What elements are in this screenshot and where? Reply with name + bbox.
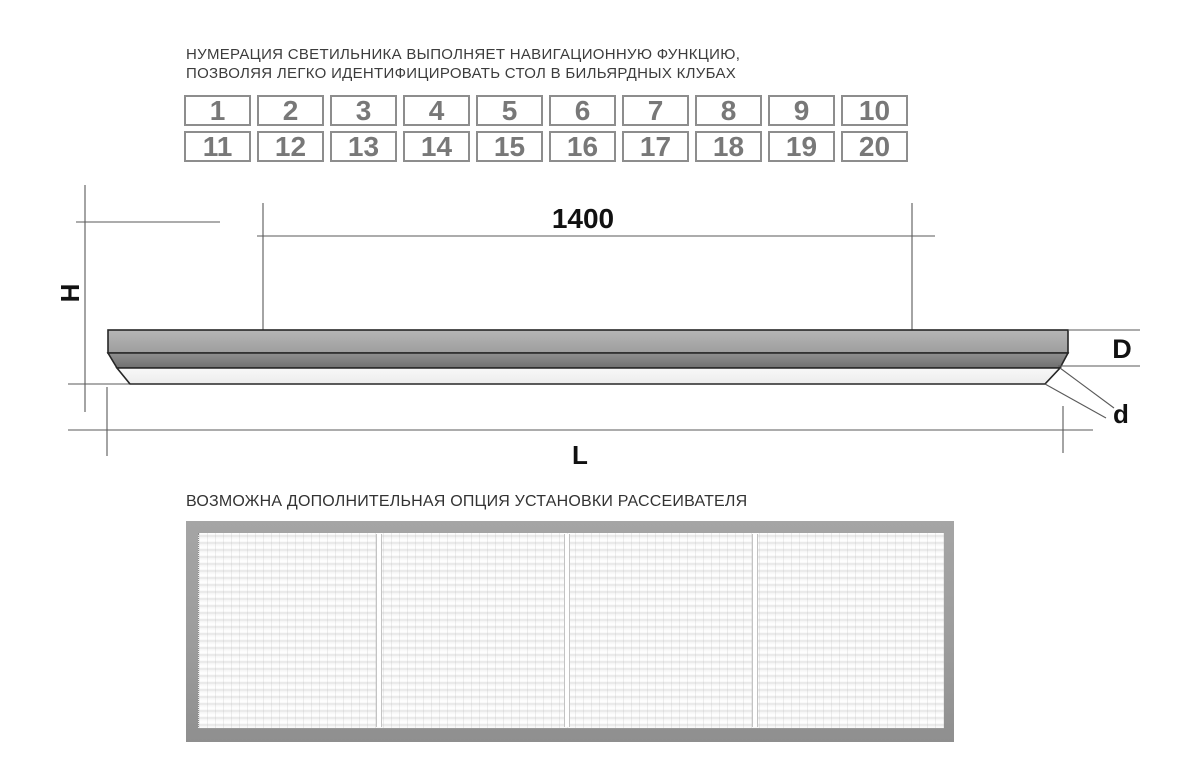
dim-d-small-leader-2 — [1045, 384, 1106, 418]
lamp-housing-band — [108, 353, 1068, 368]
lamp-number-box: 13 — [330, 131, 397, 162]
dim-l-label: L — [572, 440, 588, 470]
headline: НУМЕРАЦИЯ СВЕТИЛЬНИКА ВЫПОЛНЯЕТ НАВИГАЦИ… — [186, 45, 740, 83]
lamp-number-box: 2 — [257, 95, 324, 126]
lamp-number-box: 19 — [768, 131, 835, 162]
lamp-number-box: 16 — [549, 131, 616, 162]
diffuser-panel — [198, 533, 944, 729]
diffuser-photo-frame — [186, 521, 954, 742]
diffuser-caption: ВОЗМОЖНА ДОПОЛНИТЕЛЬНАЯ ОПЦИЯ УСТАНОВКИ … — [186, 493, 747, 511]
number-row: 12345678910 — [184, 95, 908, 126]
lamp-number-box: 6 — [549, 95, 616, 126]
page: НУМЕРАЦИЯ СВЕТИЛЬНИКА ВЫПОЛНЯЕТ НАВИГАЦИ… — [0, 0, 1200, 760]
panel-divider — [376, 534, 382, 727]
lamp-number-box: 8 — [695, 95, 762, 126]
panel-divider — [564, 534, 570, 727]
lamp-dimension-drawing: 1400 H D d L — [0, 180, 1200, 480]
dim-d-small-label: d — [1113, 399, 1129, 429]
lamp-number-box: 10 — [841, 95, 908, 126]
lamp-number-box: 11 — [184, 131, 251, 162]
headline-line2: ПОЗВОЛЯЯ ЛЕГКО ИДЕНТИФИЦИРОВАТЬ СТОЛ В Б… — [186, 64, 740, 83]
lamp-number-box: 15 — [476, 131, 543, 162]
lamp-number-box: 12 — [257, 131, 324, 162]
lamp-number-box: 14 — [403, 131, 470, 162]
lamp-number-box: 20 — [841, 131, 908, 162]
lamp-number-box: 3 — [330, 95, 397, 126]
lamp-number-box: 9 — [768, 95, 835, 126]
lamp-housing-top — [108, 330, 1068, 353]
lamp-number-box: 5 — [476, 95, 543, 126]
lamp-number-box: 4 — [403, 95, 470, 126]
number-row: 11121314151617181920 — [184, 131, 908, 162]
lamp-number-box: 7 — [622, 95, 689, 126]
dim-d-label: D — [1112, 334, 1132, 364]
dim-d-small-leader-1 — [1060, 368, 1114, 408]
lamp-diffuser-edge — [117, 368, 1060, 384]
headline-line1: НУМЕРАЦИЯ СВЕТИЛЬНИКА ВЫПОЛНЯЕТ НАВИГАЦИ… — [186, 45, 740, 64]
dim-h-label: H — [55, 284, 85, 303]
dim-1400-label: 1400 — [552, 203, 614, 234]
lamp-number-box: 17 — [622, 131, 689, 162]
lamp-number-grid: 1234567891011121314151617181920 — [184, 95, 908, 167]
panel-divider — [752, 534, 758, 727]
lamp-number-box: 18 — [695, 131, 762, 162]
lamp-number-box: 1 — [184, 95, 251, 126]
